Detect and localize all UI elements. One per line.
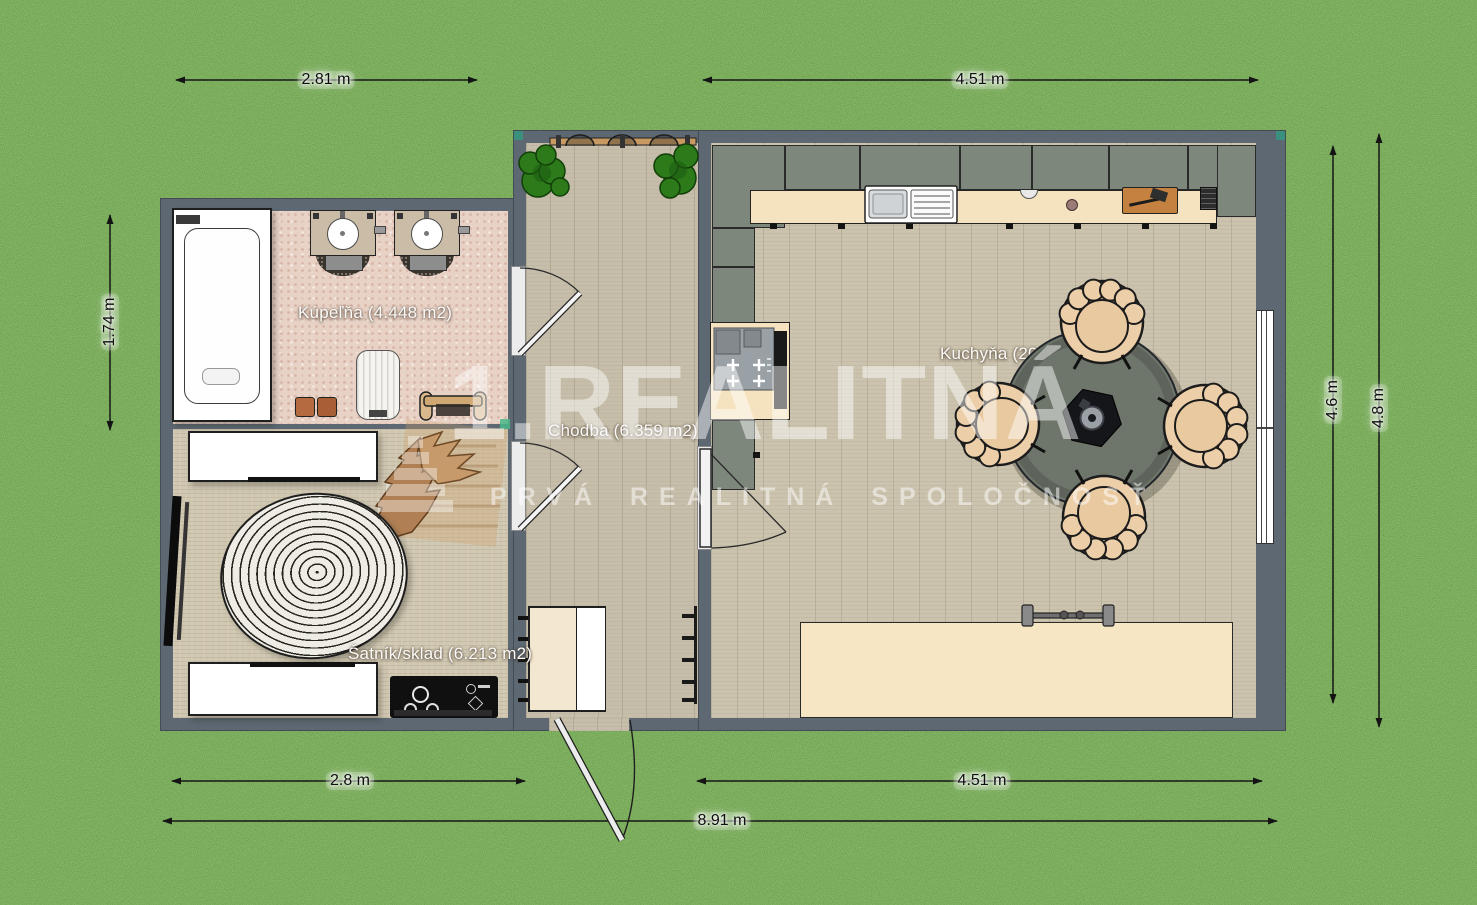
cabinet-panel — [576, 608, 605, 710]
hook-rail — [694, 606, 697, 704]
console-diamond — [468, 696, 484, 712]
storage-door — [512, 435, 612, 539]
hook — [518, 616, 528, 620]
dim-top-right: 4.51 m — [952, 71, 1009, 89]
room-label-storage: Šatník/sklad (6.213 m2) — [348, 644, 532, 664]
dim-bottom-right: 4.51 m — [954, 772, 1011, 790]
hook — [518, 698, 528, 702]
counter-knob — [1066, 199, 1078, 211]
dim-right-inner: 4.6 m — [1324, 376, 1342, 424]
dining-set — [930, 258, 1290, 588]
basin-drain — [424, 231, 429, 236]
sideboard-handle — [248, 477, 360, 482]
kitchen-left-cabinets-upper — [712, 228, 755, 324]
bathtub-drain — [202, 368, 240, 385]
console-knob — [412, 686, 429, 703]
console-base — [394, 710, 492, 716]
hook — [682, 680, 694, 684]
kitchen-sink — [864, 185, 958, 225]
sideboard-top — [188, 431, 378, 482]
hook — [682, 698, 694, 702]
sideboard-bottom — [188, 662, 378, 716]
vanity-counter — [394, 210, 460, 256]
console-dots — [478, 685, 490, 688]
wall-tv — [166, 494, 192, 654]
cutting-board — [1122, 187, 1178, 214]
hook — [518, 679, 528, 683]
vanity-sink-left — [310, 210, 378, 280]
hook — [682, 636, 694, 640]
room-label-bathroom: Kúpeľňa (4.448 m2) — [298, 303, 452, 323]
coat-hooks-right — [682, 606, 698, 706]
laundry-hamper — [356, 350, 400, 420]
corner-accent-kitchen — [1276, 131, 1285, 140]
dim-right-outer: 4.8 m — [1370, 384, 1388, 432]
vanity-spout — [374, 226, 386, 234]
bathroom-door — [512, 260, 612, 364]
bush-right — [650, 138, 704, 202]
bush-left — [516, 143, 572, 203]
bathtub — [172, 208, 272, 422]
barbell-rail — [1020, 602, 1115, 628]
vanity-sink-right — [394, 210, 462, 280]
dim-top-left: 2.81 m — [298, 71, 355, 89]
entrance-door — [538, 712, 653, 852]
dim-bottom-total: 8.91 m — [694, 812, 751, 830]
bathtub-faucet — [176, 215, 200, 224]
dim-bottom-left: 2.8 m — [326, 772, 374, 790]
vanity-bracket — [451, 213, 457, 219]
floor-mat — [800, 622, 1233, 718]
vanity-bracket — [397, 213, 403, 219]
basin-drain — [340, 231, 345, 236]
kitchen-tall-cabinet — [1217, 145, 1256, 217]
vanity-spout — [458, 226, 470, 234]
vanity-bracket — [367, 213, 373, 219]
kitchen-door — [698, 444, 798, 556]
vanity-counter — [310, 210, 376, 256]
hook — [518, 637, 528, 641]
small-appliance — [1200, 187, 1217, 210]
kitchen-upper-cabinets — [785, 145, 1256, 190]
vanity-bracket — [313, 213, 319, 219]
corner-accent-hall — [514, 131, 523, 140]
hook — [682, 614, 694, 618]
floor-plan-canvas: 2.81 m 4.51 m 1.74 m 4.6 m 4.8 m 2.8 m 4… — [0, 0, 1477, 905]
dim-left: 1.74 m — [101, 294, 119, 351]
shoe-cabinet — [528, 606, 606, 712]
hook — [682, 658, 694, 662]
media-console — [390, 676, 498, 718]
stove — [710, 322, 790, 420]
room-label-hallway: Chodba (6.359 m2) — [548, 421, 698, 441]
sideboard-handle — [250, 662, 355, 667]
console-dial — [466, 684, 476, 694]
storage-box — [317, 397, 337, 417]
storage-box — [295, 397, 315, 417]
